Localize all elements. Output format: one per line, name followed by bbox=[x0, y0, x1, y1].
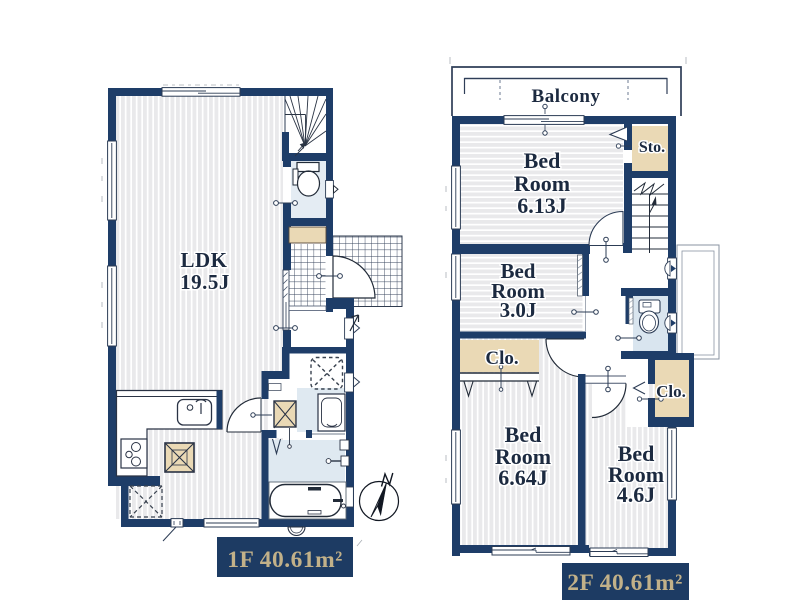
svg-text:Bed: Bed bbox=[524, 148, 561, 173]
svg-text:19.5J: 19.5J bbox=[180, 270, 230, 294]
svg-text:Clo.: Clo. bbox=[485, 348, 518, 369]
svg-text:1F 40.61m²: 1F 40.61m² bbox=[227, 547, 343, 573]
svg-text:4.6J: 4.6J bbox=[617, 482, 656, 507]
svg-text:3.0J: 3.0J bbox=[500, 298, 537, 322]
svg-text:6.64J: 6.64J bbox=[498, 465, 548, 490]
svg-text:6.13J: 6.13J bbox=[517, 193, 567, 218]
svg-text:Clo.: Clo. bbox=[656, 382, 686, 401]
svg-text:2F 40.61m²: 2F 40.61m² bbox=[567, 570, 683, 596]
svg-text:LDK: LDK bbox=[180, 248, 227, 272]
svg-text:Sto.: Sto. bbox=[639, 139, 665, 156]
svg-text:Balcony: Balcony bbox=[532, 86, 601, 107]
